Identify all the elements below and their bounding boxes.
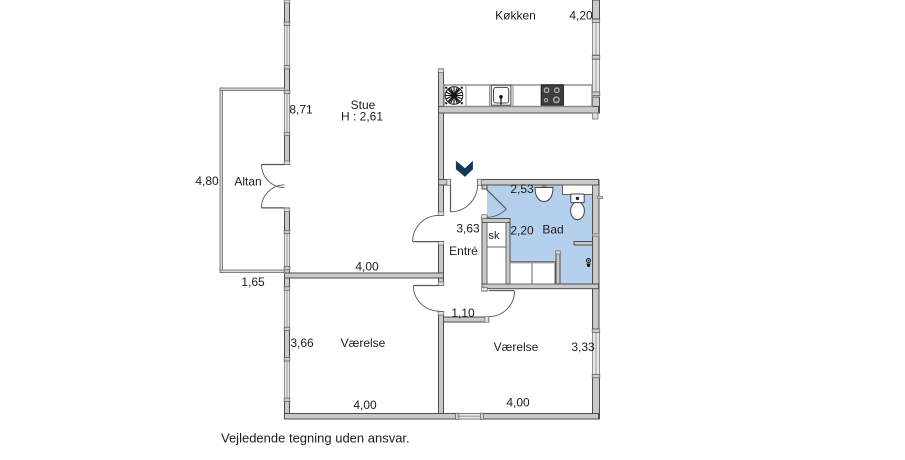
svg-text:2,20: 2,20 bbox=[510, 224, 534, 238]
svg-text:Værelse: Værelse bbox=[341, 336, 386, 350]
svg-text:Altan: Altan bbox=[234, 175, 261, 189]
svg-text:4,00: 4,00 bbox=[353, 398, 377, 412]
svg-text:Entré: Entré bbox=[449, 244, 478, 258]
svg-text:2,53: 2,53 bbox=[510, 182, 534, 196]
svg-text:Køkken: Køkken bbox=[495, 8, 536, 22]
svg-text:4,00: 4,00 bbox=[506, 396, 530, 410]
svg-text:4,80: 4,80 bbox=[195, 174, 219, 188]
svg-text:1,10: 1,10 bbox=[451, 306, 475, 320]
svg-text:H : 2,61: H : 2,61 bbox=[341, 110, 383, 124]
svg-text:1,65: 1,65 bbox=[241, 275, 265, 289]
svg-text:3,33: 3,33 bbox=[571, 340, 595, 354]
svg-text:Værelse: Værelse bbox=[494, 340, 539, 354]
svg-text:Bad: Bad bbox=[542, 223, 563, 237]
svg-text:8,71: 8,71 bbox=[289, 103, 313, 117]
svg-text:4,00: 4,00 bbox=[355, 260, 379, 274]
svg-text:3,63: 3,63 bbox=[456, 222, 480, 236]
svg-text:Vejledende tegning uden ansvar: Vejledende tegning uden ansvar. bbox=[221, 430, 410, 445]
svg-text:sk: sk bbox=[489, 230, 501, 242]
svg-text:4,20: 4,20 bbox=[569, 9, 593, 23]
svg-text:3,66: 3,66 bbox=[290, 336, 314, 350]
